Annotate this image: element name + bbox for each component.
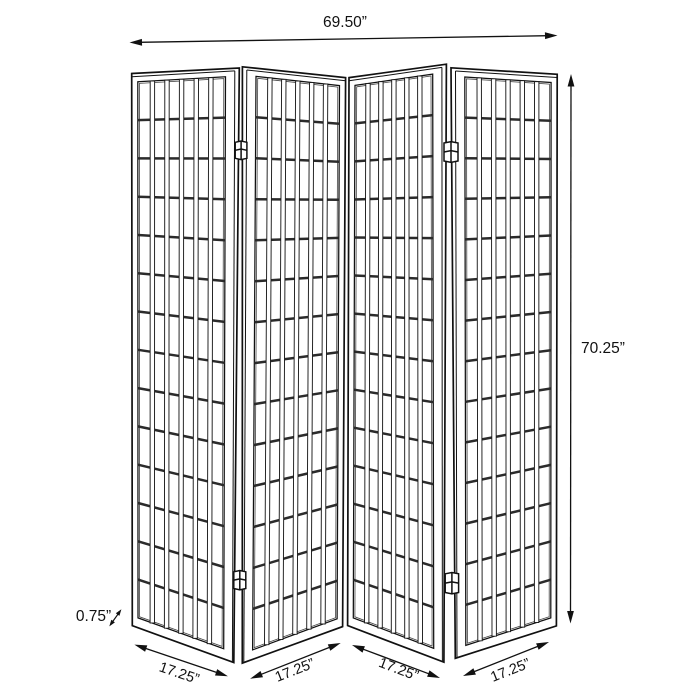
svg-text:17.25”: 17.25” [488,656,532,686]
svg-text:70.25”: 70.25” [581,340,625,357]
svg-text:0.75”: 0.75” [76,608,111,625]
svg-text:17.25”: 17.25” [376,655,420,685]
svg-text:69.50”: 69.50” [323,14,367,31]
svg-text:17.25”: 17.25” [157,660,201,688]
svg-text:17.25”: 17.25” [273,656,317,686]
